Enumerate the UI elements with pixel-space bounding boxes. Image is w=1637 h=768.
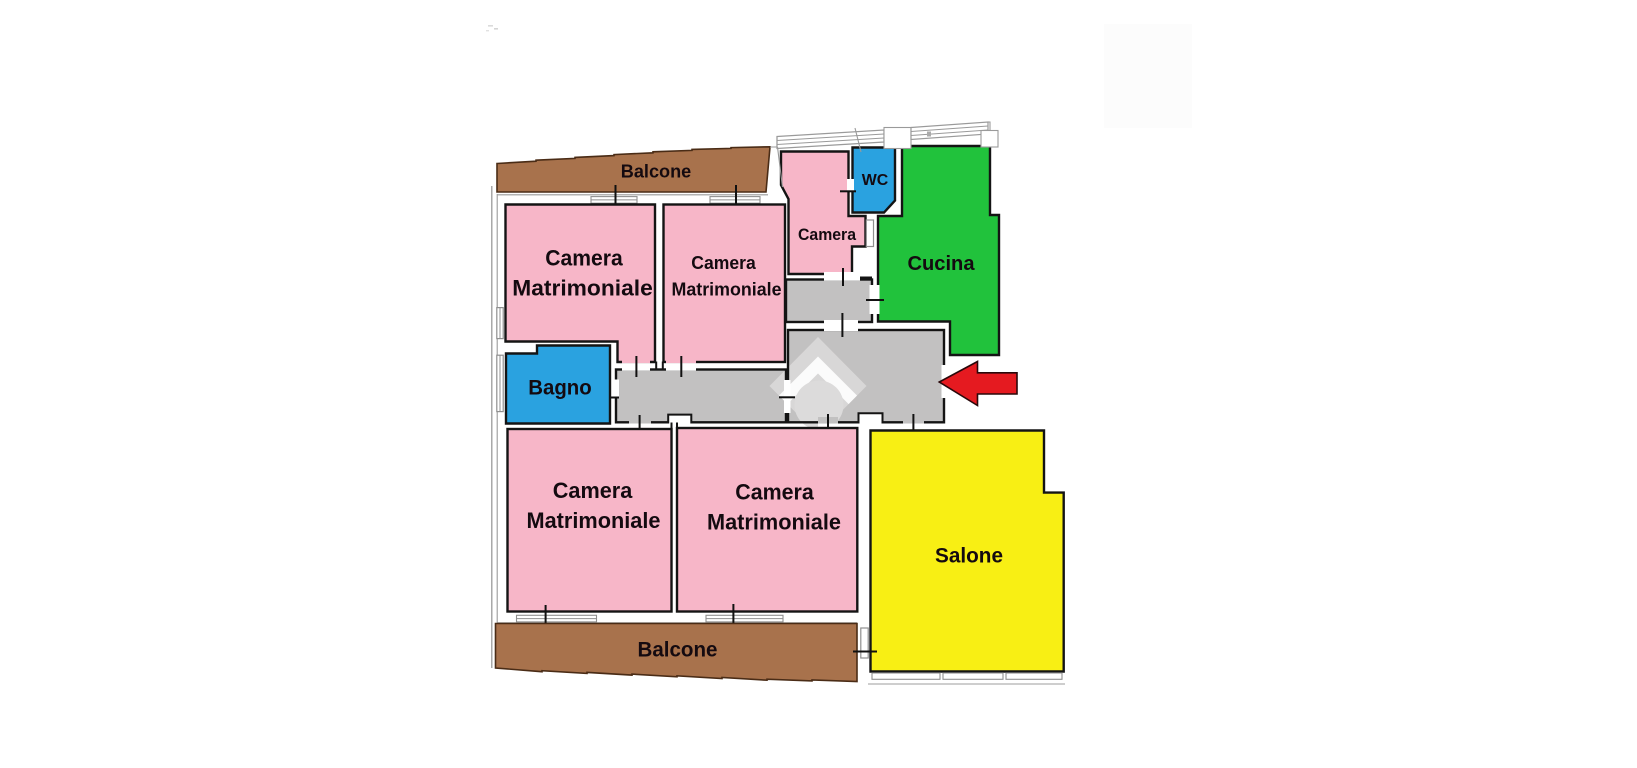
svg-text:Matrimoniale: Matrimoniale	[512, 276, 653, 301]
svg-text:Bagno: Bagno	[528, 377, 592, 400]
svg-text:Cucina: Cucina	[908, 253, 976, 275]
svg-text:Matrimoniale: Matrimoniale	[527, 508, 661, 533]
svg-text:Camera: Camera	[553, 478, 633, 503]
svg-text:Salone: Salone	[935, 544, 1003, 568]
svg-text:Matrimoniale: Matrimoniale	[672, 280, 782, 300]
svg-text:WC: WC	[862, 172, 889, 189]
svg-text:Balcone: Balcone	[621, 161, 692, 182]
svg-text:Camera: Camera	[798, 225, 857, 244]
svg-text:Camera: Camera	[735, 480, 814, 505]
svg-text:Camera: Camera	[545, 246, 623, 271]
svg-text:Matrimoniale: Matrimoniale	[707, 510, 841, 535]
svg-text:Camera: Camera	[691, 253, 756, 273]
svg-text:Balcone: Balcone	[638, 639, 718, 662]
